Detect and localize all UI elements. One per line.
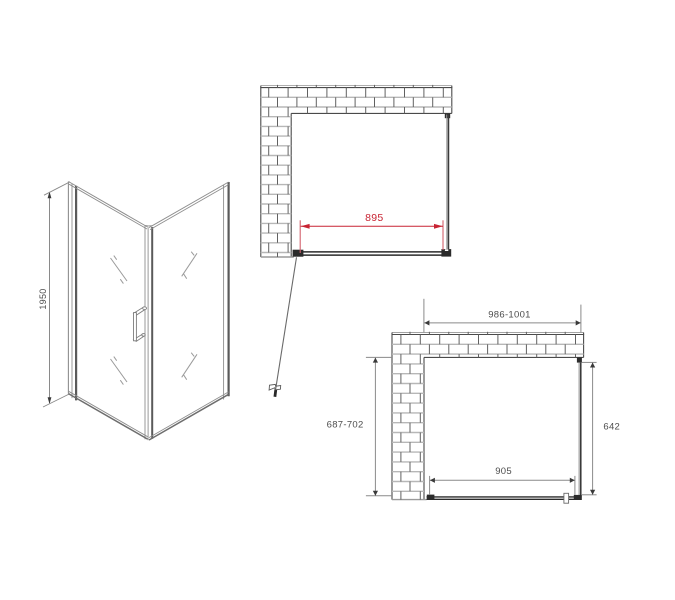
- svg-text:986-1001: 986-1001: [488, 310, 531, 321]
- svg-text:642: 642: [603, 422, 620, 433]
- svg-text:687-702: 687-702: [327, 419, 364, 430]
- svg-text:895: 895: [365, 212, 383, 224]
- svg-text:1950: 1950: [38, 288, 48, 309]
- svg-text:905: 905: [495, 466, 512, 477]
